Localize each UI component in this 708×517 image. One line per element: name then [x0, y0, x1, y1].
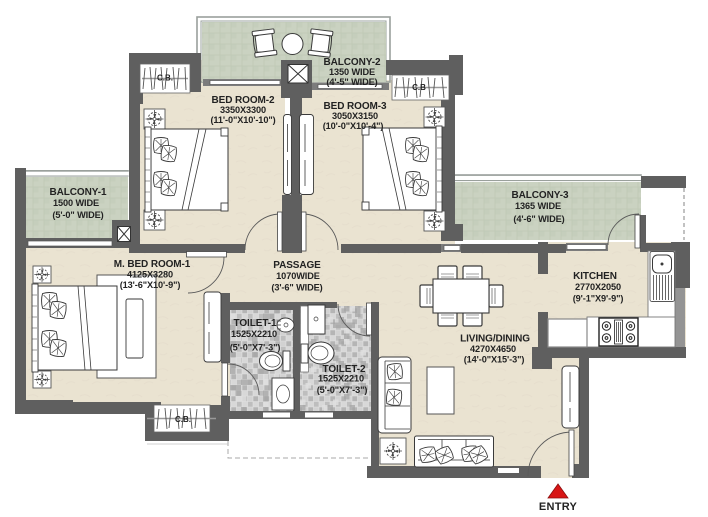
svg-text:C.B.: C.B. — [157, 74, 173, 83]
svg-text:C.B.: C.B. — [175, 415, 191, 424]
svg-text:PASSAGE: PASSAGE — [273, 260, 321, 271]
svg-text:1350 WIDE: 1350 WIDE — [329, 67, 375, 77]
svg-text:(5'-0"X7'-3"): (5'-0"X7'-3") — [317, 385, 368, 395]
svg-text:(3'-6" WIDE): (3'-6" WIDE) — [271, 283, 322, 293]
svg-text:(4'-5" WIDE): (4'-5" WIDE) — [326, 77, 377, 87]
svg-text:4125X3280: 4125X3280 — [127, 270, 173, 280]
svg-text:(4'-6" WIDE): (4'-6" WIDE) — [513, 214, 564, 224]
svg-text:ENTRY: ENTRY — [539, 501, 578, 513]
svg-text:BALCONY-3: BALCONY-3 — [512, 190, 569, 201]
svg-text:M. BED ROOM-1: M. BED ROOM-1 — [114, 259, 191, 270]
svg-text:(14'-0"X15'-3"): (14'-0"X15'-3") — [464, 355, 525, 365]
svg-text:4270X4650: 4270X4650 — [470, 344, 516, 354]
svg-text:3350X3300: 3350X3300 — [220, 105, 266, 115]
svg-text:(13'-6"X10'-9"): (13'-6"X10'-9") — [120, 280, 181, 290]
svg-text:BALCONY-1: BALCONY-1 — [50, 187, 107, 198]
svg-text:1365 WIDE: 1365 WIDE — [515, 201, 561, 211]
svg-text:(5'-0" WIDE): (5'-0" WIDE) — [52, 210, 103, 220]
svg-text:3050X3150: 3050X3150 — [332, 111, 378, 121]
svg-text:TOILET-1: TOILET-1 — [234, 318, 277, 329]
svg-text:KITCHEN: KITCHEN — [573, 271, 617, 282]
svg-text:1070WIDE: 1070WIDE — [276, 271, 320, 281]
svg-text:1500 WIDE: 1500 WIDE — [53, 198, 99, 208]
svg-text:(11'-0"X10'-10"): (11'-0"X10'-10") — [210, 115, 275, 125]
svg-text:C.B: C.B — [412, 83, 426, 92]
svg-text:2770X2050: 2770X2050 — [575, 282, 621, 292]
svg-text:(9'-1"X9'-9"): (9'-1"X9'-9") — [573, 294, 624, 304]
svg-text:(5'-0"X7'-3"): (5'-0"X7'-3") — [230, 343, 281, 353]
svg-text:LIVING/DINING: LIVING/DINING — [460, 334, 530, 345]
svg-text:(10'-0"X10'-4"): (10'-0"X10'-4") — [323, 121, 384, 131]
svg-text:1525X2210: 1525X2210 — [318, 374, 364, 384]
svg-text:1525X2210: 1525X2210 — [231, 329, 277, 339]
